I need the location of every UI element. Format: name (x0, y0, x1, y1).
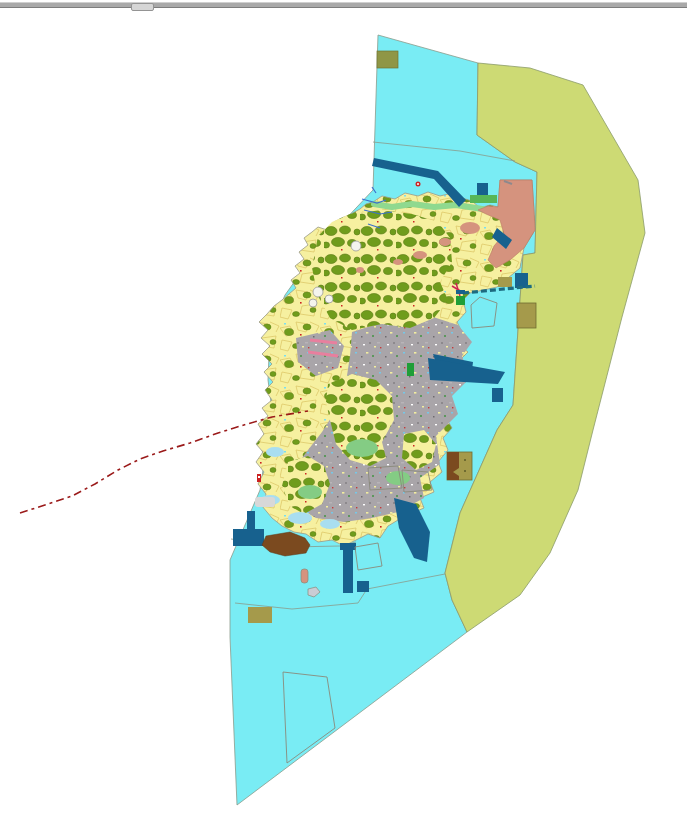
khaki-parcel-ne-small (498, 277, 512, 287)
khaki-parcel-top (377, 51, 398, 68)
north-coastal-green-strip (374, 204, 494, 211)
khaki-brown-compound (447, 452, 472, 480)
marker-red-north (416, 182, 421, 187)
light-gray-patch (255, 497, 275, 507)
islet-salmon (301, 569, 308, 583)
green-parcel-north (470, 195, 497, 203)
khaki-parcel-east (517, 303, 536, 328)
dock-north-east (477, 183, 488, 195)
map-viewport[interactable] (0, 0, 687, 821)
pier-southwest-bar (233, 529, 264, 546)
pier-southwest-stem (247, 511, 255, 530)
land-use-map[interactable] (0, 0, 687, 821)
drag-handle[interactable] (131, 3, 154, 11)
marker-red-west (257, 474, 261, 482)
forest-area-north (312, 210, 452, 330)
dock-square-south (357, 581, 369, 592)
top-divider-bar (0, 2, 687, 8)
dock-square-east (492, 388, 503, 402)
bright-green-parcel-2 (456, 296, 465, 305)
bright-green-parcel (407, 363, 414, 376)
khaki-parcel-bottom (248, 607, 272, 623)
pier-south-vertical (343, 543, 353, 593)
pier-south-head (340, 543, 356, 550)
